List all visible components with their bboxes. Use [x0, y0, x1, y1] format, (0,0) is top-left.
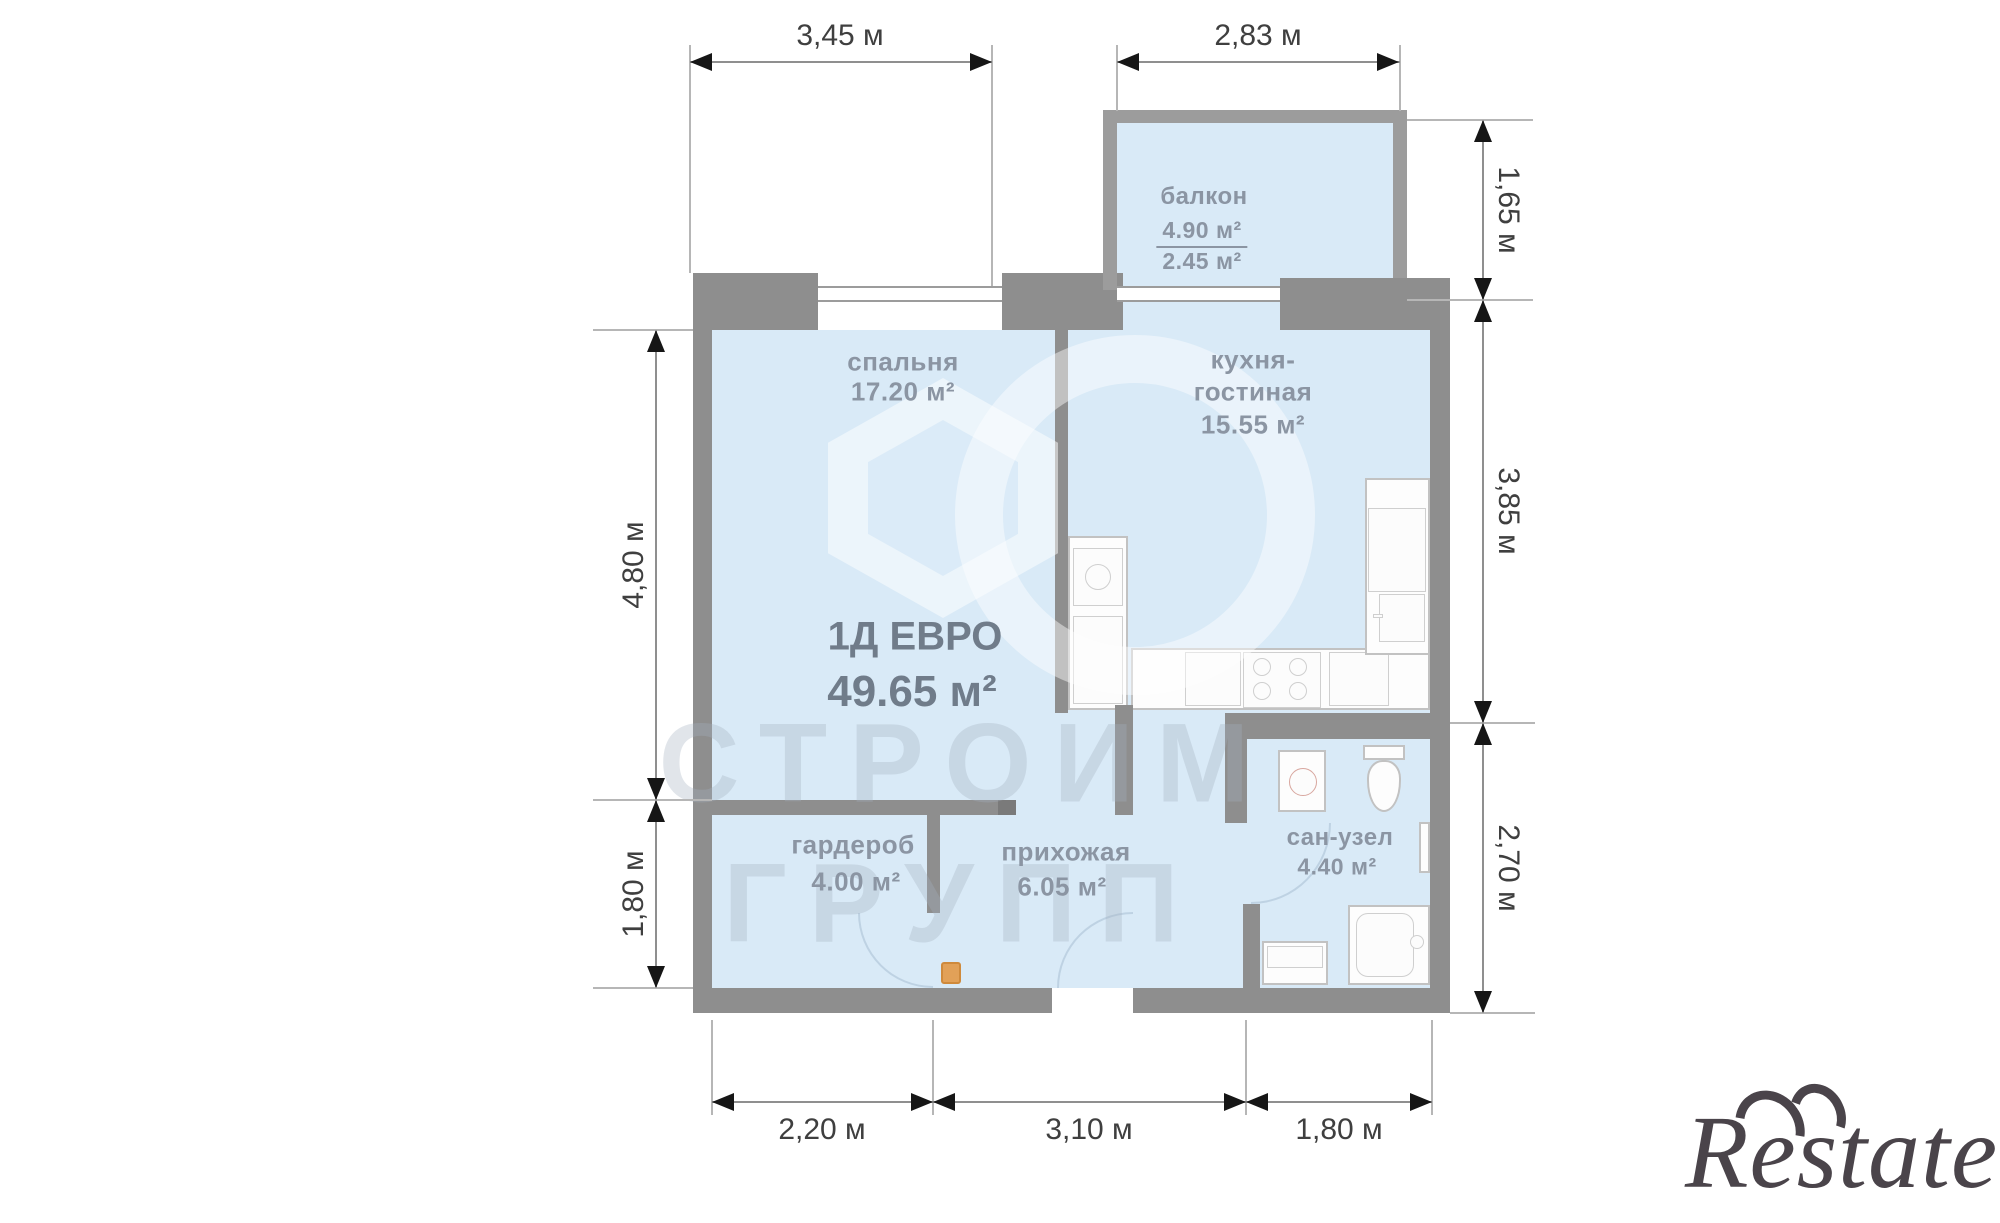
dim-arrow [1474, 991, 1492, 1013]
balcony-label: балкон [1160, 183, 1247, 211]
wall-kitchen-top [1280, 278, 1450, 330]
bedroom-area: 17.20 м² [851, 377, 955, 408]
stove-burner-icon [1289, 682, 1307, 700]
brand-logo: Restate [1633, 1085, 2000, 1223]
bathroom-area: 4.40 м² [1297, 854, 1376, 881]
washing-machine-door-icon [1289, 768, 1317, 796]
balcony-area-fraction: 4.90 м² 2.45 м² [1156, 217, 1247, 275]
kitchen-living-label-line2: гостиная [1194, 377, 1313, 408]
ext-line [593, 987, 693, 989]
bedroom-window [818, 286, 1002, 302]
dim-line-top-balcony [1117, 61, 1400, 63]
wall-left [693, 273, 712, 1013]
plan-total-area: 49.65 м² [827, 667, 997, 717]
wall-balcony-top [1103, 110, 1407, 123]
wall-top-bedroom-left [693, 273, 818, 330]
ext-line [1407, 299, 1533, 301]
towel-rail [1419, 822, 1430, 873]
washing-machine [1278, 750, 1326, 812]
stove-burner-icon [1253, 682, 1271, 700]
ext-line [1407, 119, 1533, 121]
dim-arrow [1377, 53, 1399, 71]
faucet-icon [1373, 614, 1383, 618]
kitchen-counter-right-column [1365, 478, 1430, 655]
dim-arrow [1474, 300, 1492, 322]
stove-burner-icon [1253, 658, 1271, 676]
bathroom-vanity [1262, 941, 1328, 985]
toilet-tank [1363, 745, 1405, 760]
vanity-basin [1267, 946, 1323, 968]
dim-left-bedroom: 4,80 м [617, 521, 651, 608]
bathtub-faucet-icon [1410, 935, 1424, 949]
wardrobe-area: 4.00 м² [811, 867, 900, 898]
dim-arrow [970, 53, 992, 71]
bedroom-label: спальня [847, 347, 959, 378]
bathtub-inner [1356, 913, 1414, 977]
dim-bottom-wardrobe: 2,20 м [778, 1113, 865, 1147]
wall-bottom-left [693, 988, 1052, 1013]
wardrobe-label: гардероб [791, 830, 914, 861]
dim-bottom-hallway: 3,10 м [1045, 1113, 1132, 1147]
dim-arrow [1224, 1093, 1246, 1111]
fridge [1368, 508, 1426, 592]
kitchen-living-area: 15.55 м² [1201, 410, 1305, 441]
dim-line-bottom [712, 1101, 1432, 1103]
wall-bottom-right [1133, 988, 1450, 1013]
dim-arrow [712, 1093, 734, 1111]
ext-line [1450, 1012, 1535, 1014]
dim-arrow [933, 1093, 955, 1111]
dim-arrow [1474, 278, 1492, 300]
balcony-window [1117, 286, 1280, 302]
dim-right-balcony: 1,65 м [1491, 166, 1525, 253]
dim-arrow [647, 330, 665, 352]
bathroom-label: сан-узел [1287, 824, 1394, 852]
dim-line-right [1482, 120, 1484, 1013]
dim-right-kitchen: 3,85 м [1491, 467, 1525, 554]
wall-balcony-left [1103, 110, 1117, 290]
dim-arrow [911, 1093, 933, 1111]
dim-arrow [1474, 723, 1492, 745]
stove-burner-icon [1289, 658, 1307, 676]
dim-line-left [655, 330, 657, 988]
bathtub [1348, 905, 1430, 985]
hallway-label: прихожая [1001, 837, 1130, 868]
ext-line [991, 45, 993, 286]
kitchen-sink-2 [1379, 594, 1425, 642]
dim-arrow [1246, 1093, 1268, 1111]
ext-line [593, 329, 693, 331]
dim-arrow [1410, 1093, 1432, 1111]
counter-section [1329, 652, 1389, 706]
hallway-area: 6.05 м² [1017, 872, 1106, 903]
dim-top-bedroom: 3,45 м [796, 19, 883, 53]
plan-title: 1Д ЕВРО [828, 615, 1003, 660]
wall-bathroom-left-lower [1243, 904, 1260, 988]
dim-arrow [690, 53, 712, 71]
dim-arrow [647, 800, 665, 822]
dim-arrow [647, 966, 665, 988]
kitchen-living-label-line1: кухня- [1211, 345, 1296, 376]
dim-right-bathroom: 2,70 м [1491, 824, 1525, 911]
floorplan-canvas: СТРОИМ ГРУПП спальня 17.20 м² кухня- гос… [0, 0, 2000, 1223]
wall-balcony-right [1393, 110, 1407, 290]
balcony-area-full: 4.90 м² [1156, 217, 1247, 248]
ext-line [689, 45, 691, 273]
watermark-line1: СТРОИМ [659, 699, 1272, 828]
dim-line-top-bedroom [690, 61, 992, 63]
ext-line [1399, 45, 1401, 111]
dim-arrow [1474, 701, 1492, 723]
dim-arrow [1117, 53, 1139, 71]
dim-arrow [647, 778, 665, 800]
dim-arrow [1474, 120, 1492, 142]
dim-top-balcony: 2,83 м [1214, 19, 1301, 53]
kitchen-top-fill-patch [1123, 300, 1280, 330]
dim-left-wardrobe: 1,80 м [617, 850, 651, 937]
dim-bottom-bathroom: 1,80 м [1295, 1113, 1382, 1147]
balcony-area-reduced: 2.45 м² [1162, 248, 1241, 274]
ext-line [1450, 722, 1535, 724]
wall-right [1430, 290, 1450, 1013]
